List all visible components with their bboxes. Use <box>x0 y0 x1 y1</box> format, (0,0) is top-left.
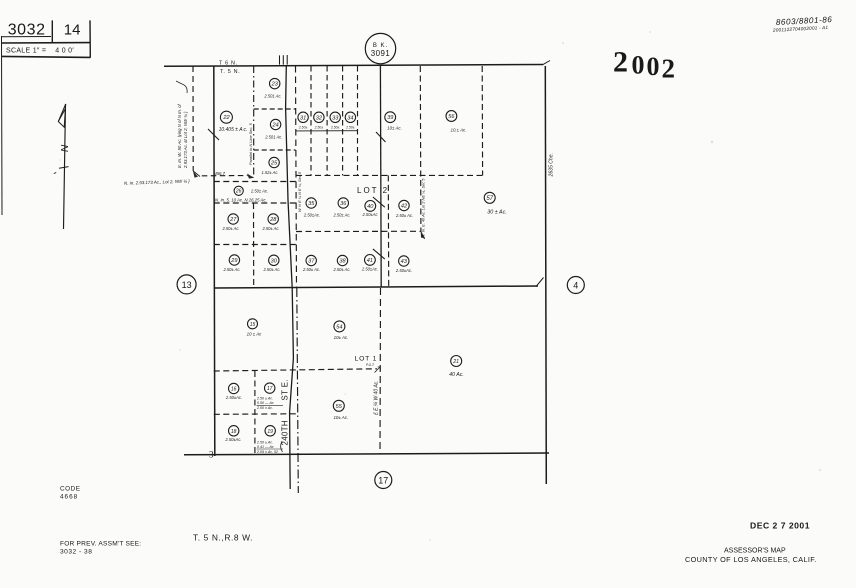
svg-text:57: 57 <box>486 196 493 202</box>
svg-text:19: 19 <box>267 429 273 435</box>
svg-text:17: 17 <box>267 386 273 392</box>
svg-text:33: 33 <box>332 115 339 121</box>
svg-text:22: 22 <box>222 115 230 121</box>
svg-text:2.50± Ac.: 2.50± Ac. <box>395 213 413 218</box>
svg-text:56: 56 <box>448 114 455 120</box>
svg-text:2635 Che.: 2635 Che. <box>548 153 554 178</box>
svg-text:456.7: 456.7 <box>215 171 226 176</box>
svg-text:34: 34 <box>347 115 353 121</box>
svg-text:0.41 — Ac: 0.41 — Ac <box>257 445 274 449</box>
svg-text:0: 0 <box>647 52 660 81</box>
svg-text:SCALE 1″ = 4 0 0′: SCALE 1″ = 4 0 0′ <box>6 48 74 55</box>
svg-text:35: 35 <box>308 201 315 207</box>
svg-text:DEC 2 7 2001: DEC 2 7 2001 <box>750 521 810 531</box>
svg-text:25: 25 <box>270 161 278 167</box>
svg-text:2: 2 <box>662 54 676 84</box>
svg-text:T. 5 N.: T. 5 N. <box>220 69 240 75</box>
svg-text:E. In. W. 50 Ac. lying N of N: E. In. W. 50 Ac. lying N of N In. of <box>177 104 182 168</box>
svg-text:2.09 ± Ac. 52: 2.09 ± Ac. 52 <box>256 450 278 454</box>
svg-text:10± Ac.: 10± Ac. <box>334 335 349 340</box>
svg-text:15: 15 <box>250 322 256 328</box>
svg-text:2.50± Ac.: 2.50± Ac. <box>262 267 280 272</box>
svg-text:2.50±Ac.: 2.50±Ac. <box>303 213 320 218</box>
svg-text:T 6 N.: T 6 N. <box>219 60 238 66</box>
svg-text:24: 24 <box>271 123 278 129</box>
svg-text:14: 14 <box>64 22 81 39</box>
svg-text:2.50± Ac.: 2.50± Ac. <box>250 188 268 193</box>
svg-text:31: 31 <box>300 115 306 121</box>
svg-text:30: 30 <box>271 258 278 264</box>
svg-text:0.50 — Ac: 0.50 — Ac <box>257 401 274 405</box>
svg-text:10± Ac.: 10± Ac. <box>333 415 348 420</box>
svg-text:21: 21 <box>452 359 459 365</box>
svg-text:2.50± Ac.: 2.50± Ac. <box>302 267 320 272</box>
svg-text:T. 5 N.,R.8 W.: T. 5 N.,R.8 W. <box>193 533 253 543</box>
svg-text:4: 4 <box>573 280 578 290</box>
svg-text:2: 2 <box>613 46 628 79</box>
svg-text:2.50±Ac.: 2.50±Ac. <box>361 267 378 272</box>
svg-text:W ½ E ¼ N E ¼, Sec 5: W ½ E ¼ N E ¼, Sec 5 <box>297 171 302 212</box>
svg-text:43: 43 <box>401 259 408 265</box>
svg-text:CODE: CODE <box>60 486 80 493</box>
svg-text:39: 39 <box>387 115 393 121</box>
svg-text:N. In. 5. 10 Ac. N 26.25 Ac.: N. In. 5. 10 Ac. N 26.25 Ac. <box>215 197 267 202</box>
svg-text:2.50±: 2.50± <box>314 126 324 130</box>
svg-text:0: 0 <box>632 51 645 80</box>
svg-text:LOT 1: LOT 1 <box>355 356 378 363</box>
svg-text:COUNTY OF LOS ANGELES, CALIF.: COUNTY OF LOS ANGELES, CALIF. <box>685 555 817 564</box>
svg-text:10± Ac.: 10± Ac. <box>387 125 402 130</box>
svg-text:2.93.173 Ac. at Lot 2, NW ¼ }: 2.93.173 Ac. at Lot 2, NW ¼ } <box>183 111 188 169</box>
svg-text:13: 13 <box>182 280 192 290</box>
svg-text:37: 37 <box>308 259 315 265</box>
svg-text:3032: 3032 <box>8 22 46 39</box>
svg-text:3091: 3091 <box>371 49 391 58</box>
svg-text:W. In. E. 40 Ac. Lot 2 NE ¼, S: W. In. E. 40 Ac. Lot 2 NE ¼, Sec 5 <box>421 178 426 238</box>
svg-text:2.50± Ac.: 2.50± Ac. <box>332 213 350 218</box>
svg-text:40 Ac.: 40 Ac. <box>449 372 464 378</box>
svg-text:2.50± Ac.: 2.50± Ac. <box>261 226 279 231</box>
svg-text:2.50± Ac.: 2.50± Ac. <box>221 226 239 231</box>
svg-text:N: N <box>60 144 71 152</box>
svg-text:2.50 ± Ac.: 2.50 ± Ac. <box>256 440 273 444</box>
svg-text:2.50±Ac.: 2.50±Ac. <box>224 437 241 442</box>
svg-text:36: 36 <box>340 201 347 207</box>
svg-text:38: 38 <box>339 259 346 265</box>
svg-text:17: 17 <box>378 475 388 485</box>
svg-text:1.52± Ac.: 1.52± Ac. <box>261 170 278 175</box>
svg-text:4668: 4668 <box>60 494 78 501</box>
svg-text:54: 54 <box>336 324 342 330</box>
svg-text:2.501 Ac.: 2.501 Ac. <box>264 134 282 139</box>
svg-text:18: 18 <box>231 429 237 435</box>
svg-text:29: 29 <box>230 258 237 264</box>
svg-text:2.50±Ac: 2.50±Ac <box>362 212 378 217</box>
svg-text:10.± Ac.: 10.± Ac. <box>451 128 467 133</box>
svg-text:3032 - 38: 3032 - 38 <box>60 549 92 556</box>
svg-text:2.50± Ac.: 2.50± Ac. <box>222 267 240 272</box>
svg-text:16: 16 <box>231 387 237 393</box>
svg-text:42: 42 <box>401 204 408 210</box>
svg-text:3: 3 <box>209 450 214 460</box>
svg-text:40: 40 <box>367 204 374 210</box>
svg-text:27: 27 <box>229 217 237 223</box>
svg-text:2.50±: 2.50± <box>298 126 308 130</box>
svg-text:23: 23 <box>271 82 279 88</box>
svg-text:£ E.¼ W 40 Ac.: £ E.¼ W 40 Ac. <box>374 380 380 416</box>
svg-text:2.00 ± Ac.: 2.00 ± Ac. <box>256 406 273 410</box>
svg-text:10.405 ± A c.: 10.405 ± A c. <box>219 127 248 133</box>
svg-text:ST E.: ST E. <box>280 379 289 400</box>
svg-text:10 ± Ac: 10 ± Ac <box>247 332 262 337</box>
svg-text:41: 41 <box>367 258 373 264</box>
svg-text:FOR PREV. ASSM'T SEE:: FOR PREV. ASSM'T SEE: <box>60 541 141 548</box>
svg-text:30 ± Ac.: 30 ± Ac. <box>487 210 507 216</box>
svg-text:55: 55 <box>336 404 343 410</box>
svg-text:28: 28 <box>269 217 277 223</box>
svg-text:2.50±Ac.: 2.50±Ac. <box>225 395 242 400</box>
svg-text:ASSESSOR'S MAP: ASSESSOR'S MAP <box>724 548 786 555</box>
svg-text:LOT 2: LOT 2 <box>357 186 389 195</box>
svg-text:P.O.T.: P.O.T. <box>366 363 375 367</box>
svg-text:26: 26 <box>235 189 242 195</box>
svg-text:2.50± Ac.: 2.50± Ac. <box>332 267 350 272</box>
svg-text:Parallel to N Line Sec. 5: Parallel to N Line Sec. 5 <box>248 122 253 165</box>
svg-text:2.50±: 2.50± <box>330 126 340 130</box>
svg-text:2.501 Ac.: 2.501 Ac. <box>263 93 281 98</box>
svg-text:2.50 ± Ac.: 2.50 ± Ac. <box>256 396 273 400</box>
svg-text:2.50±Ac.: 2.50±Ac. <box>395 268 412 273</box>
svg-text:32: 32 <box>316 115 323 121</box>
svg-text:2.50±: 2.50± <box>345 126 355 130</box>
